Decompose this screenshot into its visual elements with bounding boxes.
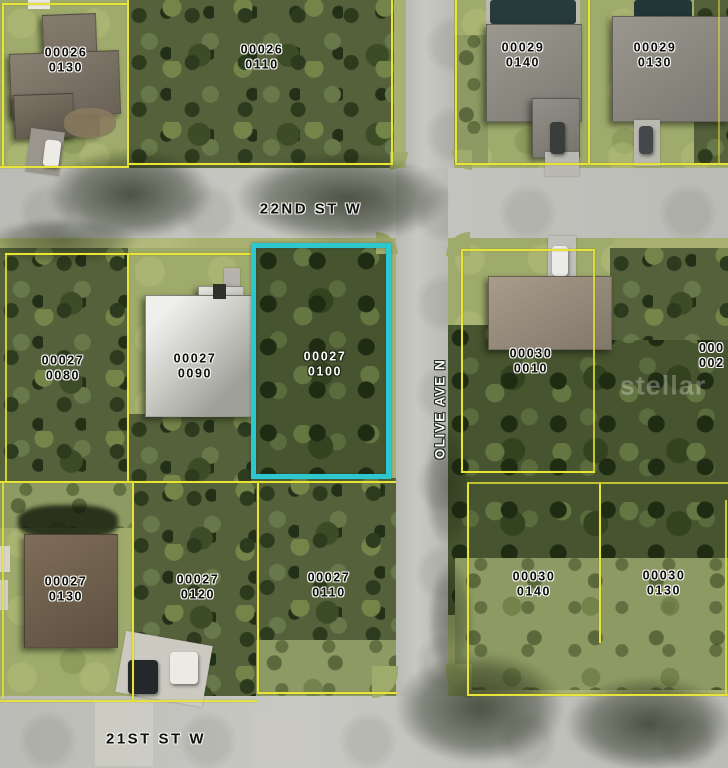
parcel-label-00030-0140: 000300140	[513, 569, 556, 599]
parcel-label-00030-0010: 000300010	[510, 346, 553, 376]
stellar-watermark: stellar	[620, 371, 707, 402]
tree-canopy	[424, 420, 472, 550]
driveway-south	[250, 714, 305, 766]
shrubs-top-right	[448, 35, 488, 165]
parcel-boundary-line	[132, 483, 134, 701]
parcel-label-00027-0110: 000270110	[308, 570, 351, 600]
parcel-boundary-line	[455, 163, 728, 165]
street-label-22nd-st-w: 22ND ST W	[260, 201, 363, 218]
woods-parcel-00027-0110	[256, 478, 396, 648]
aerial-parcel-map[interactable]: 000260130 000260110 000290140 000290130 …	[0, 0, 728, 768]
parcel-label-00027-0130: 000270130	[45, 574, 88, 604]
parcel-boundary-line	[467, 483, 469, 695]
car-dark	[639, 126, 653, 154]
street-label-olive-ave-n: OLIVE AVE N	[433, 359, 448, 460]
parcel-boundary-line	[718, 0, 720, 164]
parcel-label-00027-0100-highlighted: 000270100	[304, 349, 347, 379]
parcel-boundary-line	[461, 249, 463, 473]
parcel-boundary-line	[257, 692, 397, 694]
parcel-label-00026-0110: 000260110	[241, 42, 284, 72]
parcel-boundary-line	[593, 249, 595, 473]
parcel-boundary-line	[391, 0, 393, 165]
parcel-boundary-line	[0, 700, 257, 702]
parcel-boundary-line	[467, 694, 728, 696]
parcel-boundary-line	[467, 482, 728, 484]
parcel-boundary-line	[127, 0, 129, 167]
parcel-boundary-line	[127, 163, 393, 165]
parcel-label-00027-0080: 000270080	[42, 353, 85, 383]
car-white	[42, 139, 61, 168]
chimney	[213, 284, 226, 299]
parcel-label-00027-0090: 000270090	[174, 351, 217, 381]
woods-below-house-0090	[128, 414, 258, 484]
parcel-label-partial-right: 000002	[699, 341, 725, 371]
parcel-label-00029-0130: 000290130	[634, 40, 677, 70]
parcel-label-00029-0140: 000290140	[502, 40, 545, 70]
road-olive-ave-north-segment	[406, 0, 454, 172]
parcel-boundary-line	[725, 500, 727, 696]
parcel-boundary-line	[461, 249, 595, 251]
parcel-boundary-line	[599, 483, 601, 643]
parcel-boundary-line	[127, 253, 129, 483]
parcel-boundary-line	[455, 0, 457, 164]
parcel-boundary-line	[2, 3, 128, 5]
parcel-boundary-line	[461, 471, 595, 473]
parcel-boundary-line	[2, 483, 4, 699]
parcel-label-00027-0120: 000270120	[177, 572, 220, 602]
woods-parcel-00026-0110	[128, 0, 394, 168]
parcel-boundary-line	[0, 481, 396, 483]
dirt-patch	[64, 108, 116, 138]
tree-canopy	[0, 218, 138, 264]
woods-right-of-house-0010	[610, 248, 728, 340]
parcel-label-00030-0130: 000300130	[643, 568, 686, 598]
parcel-boundary-line	[2, 4, 4, 168]
car-white	[170, 652, 198, 684]
parcel-boundary-line	[0, 166, 129, 168]
parcel-boundary-line	[5, 253, 7, 483]
parcel-boundary-line	[588, 0, 590, 164]
tree-canopy	[565, 676, 728, 768]
parcel-boundary-line	[5, 253, 255, 255]
car-dark	[550, 122, 565, 154]
street-label-21st-st-w: 21ST ST W	[106, 731, 206, 748]
parcel-boundary-line	[257, 483, 259, 694]
parcel-label-00026-0130: 000260130	[45, 45, 88, 75]
pool	[490, 0, 576, 24]
